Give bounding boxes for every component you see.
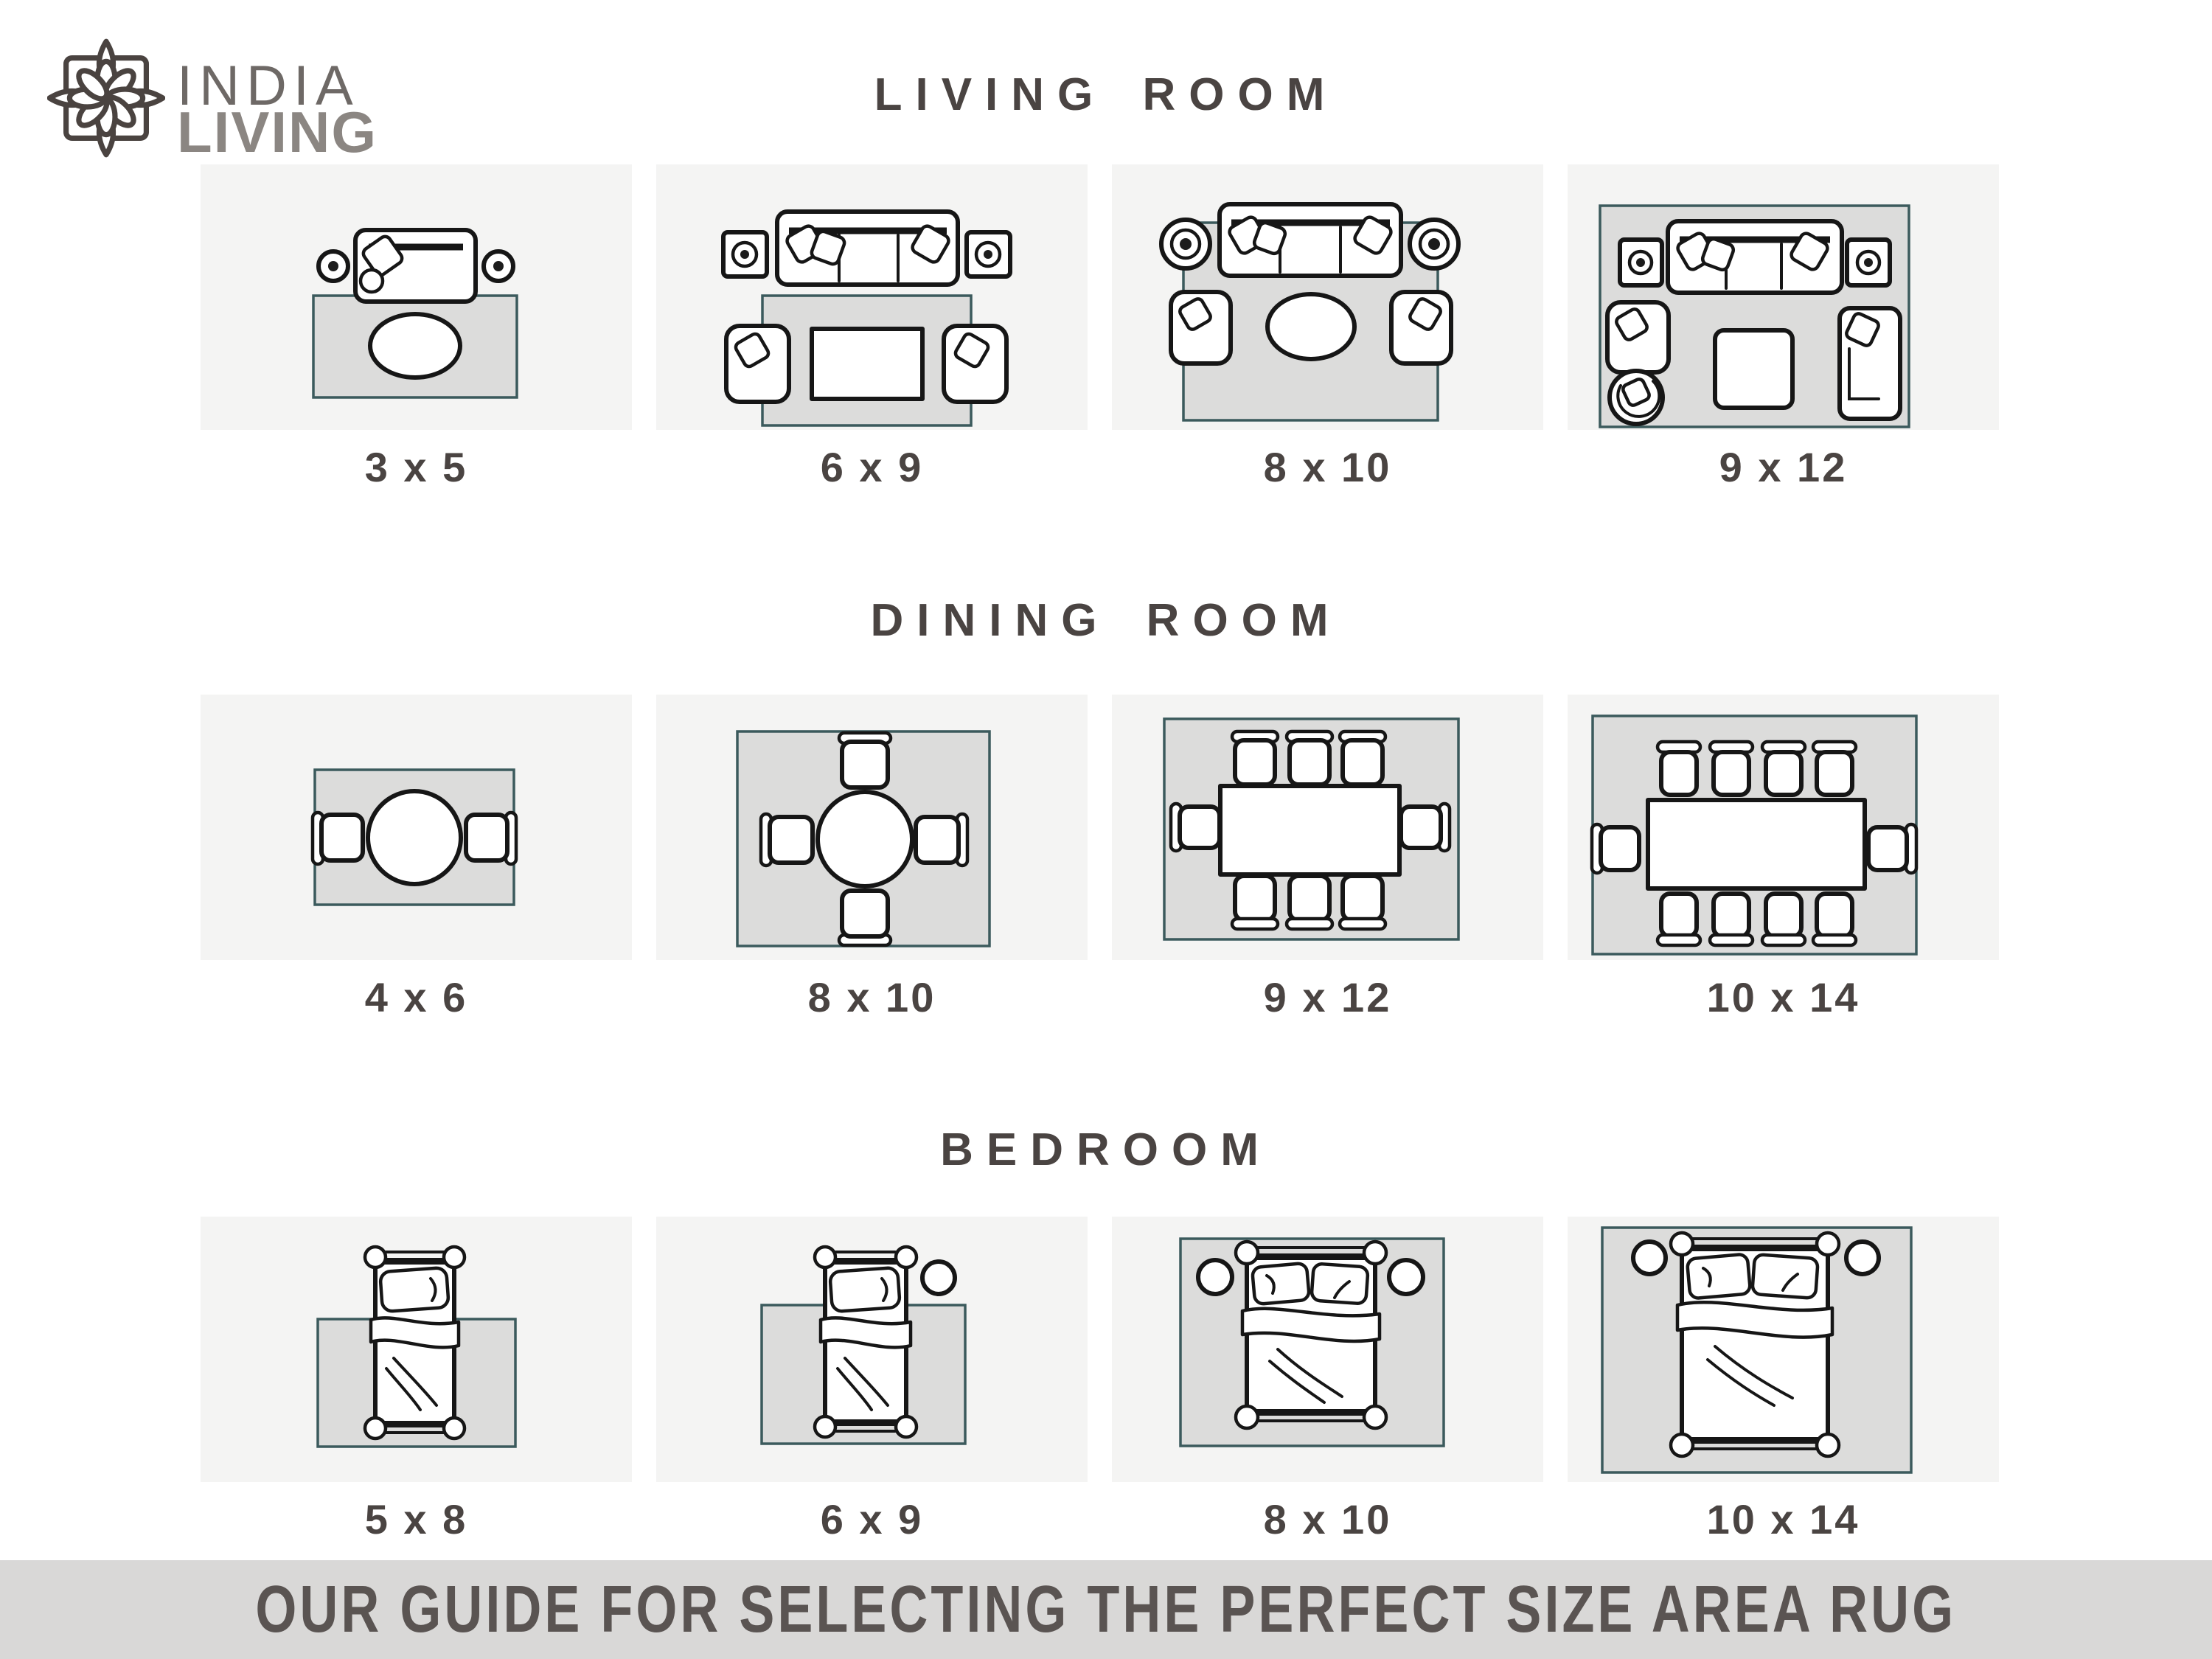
living-8x10-diagram bbox=[1112, 164, 1543, 430]
size-label: 10 x 14 bbox=[1568, 973, 1999, 1021]
armchair-right bbox=[944, 326, 1006, 402]
footer-banner: OUR GUIDE FOR SELECTING THE PERFECT SIZE… bbox=[0, 1560, 2212, 1659]
size-label: 8 x 10 bbox=[1112, 443, 1543, 491]
dining-chair-left bbox=[1171, 804, 1220, 851]
coffee-table bbox=[1267, 294, 1354, 359]
dining-9x12-diagram bbox=[1112, 695, 1543, 960]
diagram-card bbox=[1568, 1217, 1999, 1482]
queen-bed bbox=[1236, 1242, 1386, 1428]
tile-dining-4x6: 4 x 6 bbox=[201, 695, 632, 1021]
side-table-left bbox=[319, 251, 348, 281]
nightstand-right bbox=[1846, 1242, 1879, 1274]
tile-living-9x12: 9 x 12 bbox=[1568, 164, 1999, 491]
dining-chair-top bbox=[839, 733, 891, 787]
tile-living-8x10: 8 x 10 bbox=[1112, 164, 1543, 491]
tile-dining-9x12: 9 x 12 bbox=[1112, 695, 1543, 1021]
tile-bedroom-8x10: 8 x 10 bbox=[1112, 1217, 1543, 1543]
size-label: 10 x 14 bbox=[1568, 1495, 1999, 1543]
dining-chair-left bbox=[761, 814, 813, 866]
sofa bbox=[777, 212, 958, 285]
tile-bedroom-6x9: 6 x 9 bbox=[656, 1217, 1088, 1543]
nightstand-left bbox=[1633, 1242, 1666, 1274]
dining-chair-right bbox=[1868, 824, 1916, 873]
dining-chairs-bottom bbox=[1232, 876, 1385, 929]
dining-4x6-diagram bbox=[201, 695, 632, 960]
dining-table bbox=[1220, 786, 1399, 874]
coffee-table bbox=[812, 329, 922, 399]
bedroom-5x8-diagram bbox=[201, 1217, 632, 1482]
size-label: 6 x 9 bbox=[656, 443, 1088, 491]
swivel-chair bbox=[1610, 371, 1663, 424]
sofa bbox=[1220, 204, 1401, 276]
coffee-table bbox=[370, 314, 460, 378]
dining-chair-right bbox=[1401, 804, 1450, 851]
chaise-right bbox=[1840, 308, 1900, 419]
size-label: 9 x 12 bbox=[1568, 443, 1999, 491]
section-title-living-room: LIVING ROOM bbox=[0, 69, 2212, 121]
diagram-card bbox=[1568, 695, 1999, 960]
living-6x9-diagram bbox=[656, 164, 1088, 430]
bedroom-6x9-diagram bbox=[656, 1217, 1088, 1482]
side-table-right bbox=[484, 251, 513, 281]
size-label: 5 x 8 bbox=[201, 1495, 632, 1543]
diagram-card bbox=[1112, 695, 1543, 960]
diagram-card bbox=[1112, 164, 1543, 430]
side-table-right bbox=[1410, 220, 1458, 268]
coffee-table bbox=[1715, 330, 1792, 408]
size-label: 8 x 10 bbox=[1112, 1495, 1543, 1543]
bedroom-row: 5 x 8 bbox=[201, 1217, 1999, 1543]
size-label: 9 x 12 bbox=[1112, 973, 1543, 1021]
size-label: 3 x 5 bbox=[201, 443, 632, 491]
dining-10x14-diagram bbox=[1568, 695, 1999, 960]
armchair-left bbox=[1171, 292, 1231, 364]
dining-table bbox=[818, 792, 912, 886]
nightstand-left bbox=[1198, 1260, 1232, 1294]
size-label: 4 x 6 bbox=[201, 973, 632, 1021]
dining-chairs-top bbox=[1232, 731, 1385, 785]
diagram-card bbox=[656, 695, 1088, 960]
dining-chair-right bbox=[466, 813, 516, 864]
dining-chair-bottom bbox=[839, 891, 891, 945]
twin-bed bbox=[815, 1247, 917, 1437]
footer-tagline: OUR GUIDE FOR SELECTING THE PERFECT SIZE… bbox=[256, 1572, 1957, 1648]
tile-bedroom-5x8: 5 x 8 bbox=[201, 1217, 632, 1543]
diagram-card bbox=[1568, 164, 1999, 430]
living-3x5-diagram bbox=[201, 164, 632, 430]
section-title-dining-room: DINING ROOM bbox=[0, 594, 2212, 647]
size-label: 6 x 9 bbox=[656, 1495, 1088, 1543]
diagram-card bbox=[1112, 1217, 1543, 1482]
side-table-right bbox=[1847, 240, 1890, 285]
side-table-left bbox=[1620, 240, 1662, 285]
dining-8x10-diagram bbox=[656, 695, 1088, 960]
bedroom-10x14-diagram bbox=[1568, 1217, 1999, 1482]
sofa bbox=[1668, 221, 1842, 293]
queen-bed bbox=[1671, 1233, 1839, 1456]
rug-size-guide-page: INDIA LIVING LIVING ROOM bbox=[0, 0, 2212, 1659]
tile-dining-8x10: 8 x 10 bbox=[656, 695, 1088, 1021]
diagram-card bbox=[201, 1217, 632, 1482]
armchair-left bbox=[1607, 302, 1669, 372]
diagram-card bbox=[201, 164, 632, 430]
dining-room-row: 4 x 6 bbox=[201, 695, 1999, 1021]
bedroom-8x10-diagram bbox=[1112, 1217, 1543, 1482]
sofa bbox=[355, 230, 476, 302]
diagram-card bbox=[656, 164, 1088, 430]
diagram-card bbox=[201, 695, 632, 960]
dining-chair-left bbox=[1592, 824, 1639, 873]
side-table-left bbox=[723, 232, 767, 276]
section-title-bedroom: BEDROOM bbox=[0, 1124, 2212, 1176]
living-room-row: 3 x 5 bbox=[201, 164, 1999, 491]
side-table-left bbox=[1161, 220, 1210, 268]
tile-living-6x9: 6 x 9 bbox=[656, 164, 1088, 491]
tile-living-3x5: 3 x 5 bbox=[201, 164, 632, 491]
dining-chair-left bbox=[313, 813, 363, 864]
dining-chair-right bbox=[916, 814, 967, 866]
dining-table bbox=[1648, 800, 1865, 888]
dining-table bbox=[368, 791, 461, 884]
twin-bed bbox=[365, 1247, 465, 1439]
nightstand bbox=[922, 1262, 955, 1294]
tile-bedroom-10x14: 10 x 14 bbox=[1568, 1217, 1999, 1543]
tile-dining-10x14: 10 x 14 bbox=[1568, 695, 1999, 1021]
armchair-left bbox=[726, 326, 789, 402]
armchair-right bbox=[1391, 292, 1451, 364]
living-9x12-diagram bbox=[1568, 164, 1999, 430]
nightstand-right bbox=[1389, 1260, 1423, 1294]
diagram-card bbox=[656, 1217, 1088, 1482]
size-label: 8 x 10 bbox=[656, 973, 1088, 1021]
side-table-right bbox=[967, 232, 1010, 276]
